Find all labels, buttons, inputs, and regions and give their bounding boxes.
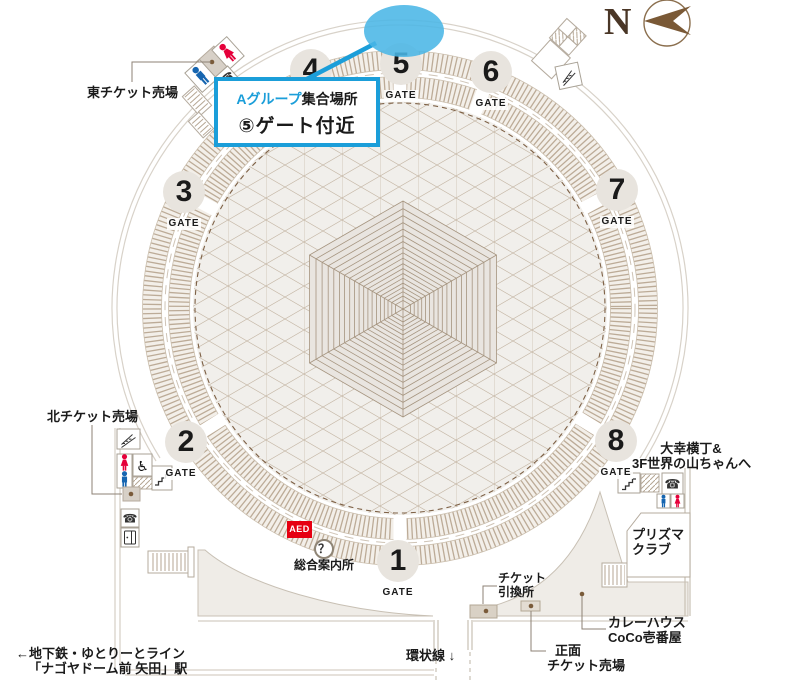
- ticket-exchange-line1: チケット: [498, 571, 546, 585]
- gate-5-marker: 5 GATE: [380, 43, 422, 103]
- gate-7-marker: 7 GATE: [596, 169, 638, 229]
- svg-text:☎: ☎: [123, 512, 138, 526]
- meeting-point-callout: Aグループ集合場所 ⑤ゲート付近: [214, 77, 380, 147]
- gate-label: GATE: [164, 468, 197, 480]
- location-dot: [580, 592, 585, 597]
- escalator-icon: [117, 429, 140, 449]
- curry-line2: CoCo壱番屋: [608, 630, 686, 645]
- gate-label: GATE: [474, 98, 507, 110]
- yokocho-line2: 3F世界の山ちゃんへ: [632, 456, 750, 471]
- station-line2: 「ナゴヤドーム前 矢田」駅: [28, 661, 187, 676]
- front-ticket-line1: 正面: [555, 643, 625, 658]
- group-name: Aグループ: [236, 91, 301, 107]
- gate-1-marker: 1 GATE: [377, 540, 419, 600]
- station-label: ←地下鉄・ゆとりーとライン 「ナゴヤドーム前 矢田」駅: [16, 646, 187, 676]
- gate-number: 6: [470, 51, 512, 93]
- curry-line1: カレーハウス: [608, 615, 686, 630]
- prisma-line1: プリズマ: [632, 527, 684, 542]
- stadium-map: ☎: [0, 0, 800, 684]
- location-dot: [129, 492, 134, 497]
- ticket-exchange-label: チケット 引換所: [498, 571, 546, 599]
- compass-arrow: [644, 6, 691, 35]
- gate-3-marker: 3 GATE: [163, 171, 205, 231]
- ramp-hatch: [641, 474, 659, 492]
- gate-6-marker: 6 GATE: [470, 51, 512, 111]
- ringroad-corridor: [434, 620, 472, 650]
- gate-number: 2: [165, 421, 207, 463]
- gate-number: 3: [163, 171, 205, 213]
- ticket-exchange-line2: 引換所: [498, 585, 546, 599]
- svg-text:☎: ☎: [664, 477, 680, 492]
- gate-label: GATE: [167, 218, 200, 230]
- wheelchair-icon: ♿: [133, 454, 152, 476]
- prisma-line2: クラブ: [632, 542, 684, 557]
- gate-number: 8: [595, 420, 637, 462]
- callout-location: ⑤ゲート付近: [218, 111, 376, 138]
- gate-label: GATE: [384, 90, 417, 102]
- gate-number: 7: [596, 169, 638, 211]
- gate-2-marker: 2 GATE: [165, 421, 207, 481]
- front-ticket-line2: チケット売場: [547, 658, 625, 673]
- compass-north-label: N: [604, 0, 631, 44]
- callout-line1: Aグループ集合場所: [218, 89, 376, 109]
- location-dot: [484, 609, 489, 614]
- gate-8-marker: 8 GATE: [595, 420, 637, 480]
- gate-label: GATE: [381, 587, 414, 599]
- ring-road-label: 環状線 ↓: [406, 648, 455, 663]
- meeting-text: 集合場所: [302, 91, 358, 107]
- east-ticket-label: 東チケット売場: [87, 85, 178, 100]
- northeast-exit-structure: [530, 18, 588, 89]
- plaza-stairs: [602, 563, 627, 587]
- escalator-icon: [555, 62, 582, 89]
- location-dot: [529, 604, 534, 609]
- ticket-exchange-box: [470, 605, 497, 618]
- station-line1: ←地下鉄・ゆとりーとライン: [16, 646, 187, 661]
- front-ticket-label: 正面 チケット売場: [547, 643, 625, 673]
- curry-house-label: カレーハウス CoCo壱番屋: [608, 615, 686, 645]
- prisma-club-label: プリズマ クラブ: [632, 527, 684, 557]
- yokocho-label: 大幸横丁& 3F世界の山ちゃんへ: [632, 441, 750, 471]
- dome-roof: [193, 101, 607, 515]
- information-icon: ？: [314, 539, 334, 559]
- svg-text:♿: ♿: [136, 458, 149, 474]
- phone-icon: ☎: [121, 509, 139, 527]
- gate-label: GATE: [599, 467, 632, 479]
- gate-number: 1: [377, 540, 419, 582]
- locker-icon: [121, 528, 139, 547]
- north-ticket-facilities: ♿ ☎: [117, 429, 172, 547]
- plaza-stairs: [148, 547, 194, 577]
- info-center-label: 総合案内所: [294, 558, 354, 572]
- gate-label: GATE: [600, 216, 633, 228]
- phone-icon: ☎: [662, 473, 683, 494]
- compass: [644, 0, 691, 46]
- north-ticket-label: 北チケット売場: [47, 409, 138, 424]
- aed-icon: AED: [287, 521, 312, 538]
- yokocho-line1: 大幸横丁&: [632, 441, 750, 456]
- gate-number: 5: [380, 43, 422, 85]
